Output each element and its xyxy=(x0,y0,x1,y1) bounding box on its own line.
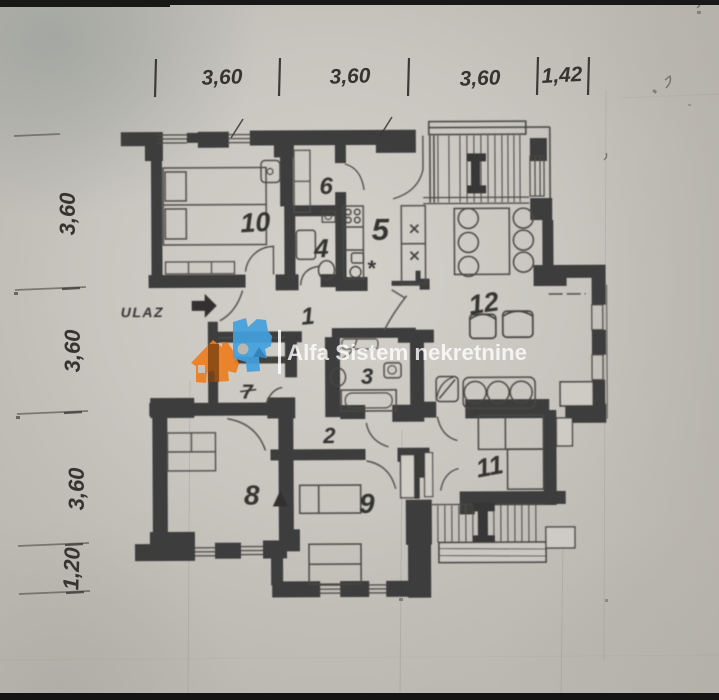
svg-text:11: 11 xyxy=(474,449,506,483)
svg-text:1,42: 1,42 xyxy=(541,63,583,88)
svg-text:7: 7 xyxy=(242,382,254,404)
svg-text:3,60: 3,60 xyxy=(459,66,501,90)
svg-text:3,60: 3,60 xyxy=(55,192,80,236)
svg-text:3,60: 3,60 xyxy=(329,64,371,88)
svg-text:8: 8 xyxy=(244,480,260,511)
svg-text:3,60: 3,60 xyxy=(60,329,85,373)
svg-text:Alfa Sistem nekretnine: Alfa Sistem nekretnine xyxy=(287,340,527,365)
svg-text:5: 5 xyxy=(372,212,390,247)
svg-text:*: * xyxy=(367,256,376,281)
svg-text:3,60: 3,60 xyxy=(64,467,89,511)
svg-text:ULAZ: ULAZ xyxy=(121,304,164,320)
svg-text:2: 2 xyxy=(322,423,336,448)
svg-text:12: 12 xyxy=(467,286,501,320)
svg-text:9: 9 xyxy=(359,488,375,519)
svg-text:1: 1 xyxy=(300,303,316,331)
svg-text:1,20: 1,20 xyxy=(58,546,85,590)
svg-text:3,60: 3,60 xyxy=(201,65,243,89)
svg-text:10: 10 xyxy=(239,207,271,239)
svg-text:4: 4 xyxy=(313,233,329,263)
svg-text:3: 3 xyxy=(361,364,373,389)
svg-text:6: 6 xyxy=(319,173,333,200)
